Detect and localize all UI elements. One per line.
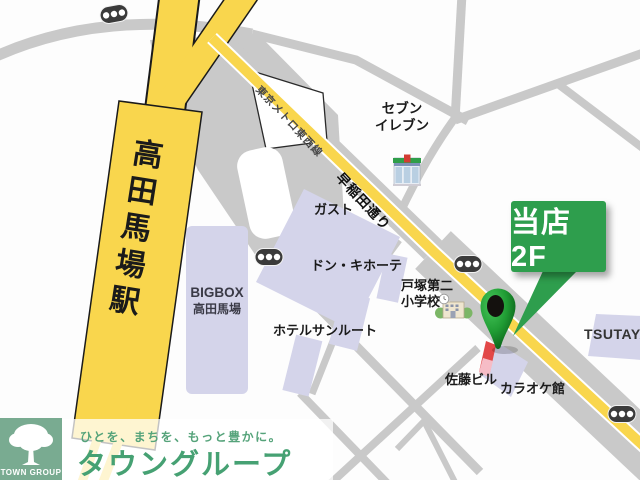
school-line1: 戸塚第二 (401, 278, 453, 294)
traffic-light-icon (454, 256, 482, 273)
traffic-light-icon (608, 406, 636, 423)
school-label: 戸塚第二 小学校 (401, 278, 453, 311)
bigbox-line1: BIGBOX (186, 285, 248, 302)
store-location-map: 高田馬場駅 東京メトロ東西線 早稲田通り セブン イレブン ガスト ドン・キホー… (0, 0, 640, 480)
store-callout-label: 当店2F (511, 199, 606, 274)
sato-building-label: 佐藤ビル (445, 372, 497, 388)
seven-eleven-label: セブン イレブン (374, 101, 430, 135)
hotel-sunroute-label: ホテルサンルート (273, 323, 377, 339)
gusto-label: ガスト (314, 202, 353, 218)
don-quijote-label: ドン・キホーテ (311, 258, 402, 274)
banner-company-name: タウングループ (77, 441, 292, 480)
store-callout-sign: 当店2F (511, 201, 606, 272)
bigbox-label: BIGBOX 高田馬場 (186, 285, 248, 317)
tsutaya-label: TSUTAYA (584, 326, 640, 344)
tree-logo-icon (0, 418, 62, 466)
convenience-store-icon (393, 155, 421, 187)
seven-eleven-line2: イレブン (374, 118, 430, 135)
school-line2: 小学校 (401, 294, 453, 310)
karaoke-kan-label: カラオケ館 (500, 381, 565, 397)
bigbox-line2: 高田馬場 (186, 302, 248, 317)
logo-text: TOWN GROUP (0, 468, 62, 477)
seven-eleven-line1: セブン (374, 101, 430, 118)
brand-logo: TOWN GROUP (0, 418, 62, 480)
traffic-light-icon (255, 249, 283, 266)
